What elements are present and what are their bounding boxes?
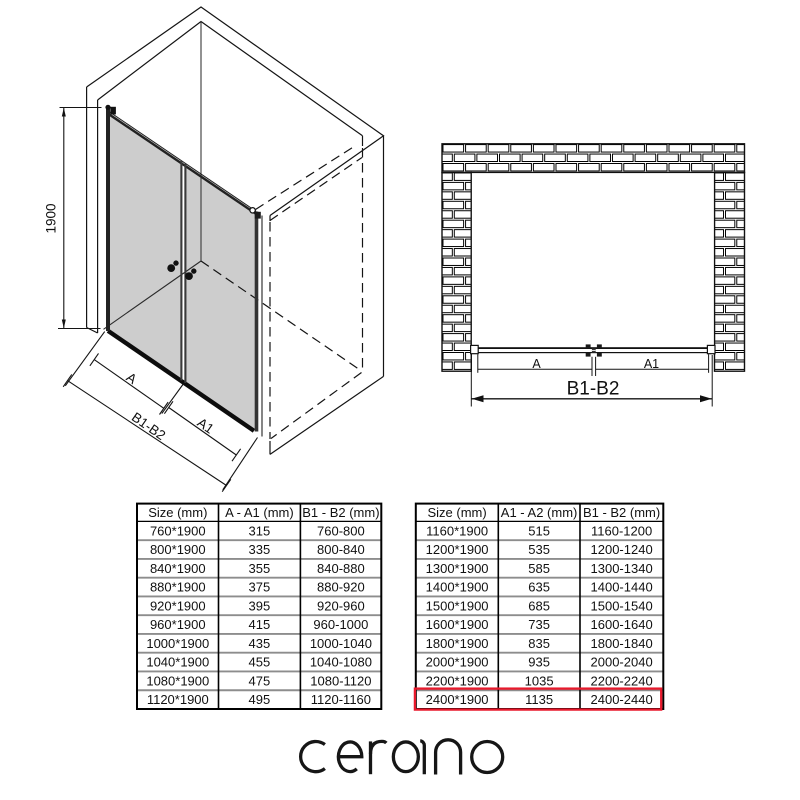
svg-text:880-920: 880-920	[317, 580, 365, 595]
svg-text:A1: A1	[195, 415, 217, 437]
svg-text:635: 635	[528, 580, 550, 595]
svg-text:1300*1900: 1300*1900	[426, 561, 489, 576]
svg-text:1600-1640: 1600-1640	[591, 617, 653, 632]
svg-text:1800-1840: 1800-1840	[591, 636, 653, 651]
svg-text:415: 415	[249, 617, 271, 632]
svg-text:A1 - A2 (mm): A1 - A2 (mm)	[501, 505, 578, 520]
svg-text:335: 335	[249, 542, 271, 557]
svg-text:355: 355	[249, 561, 271, 576]
svg-text:1900: 1900	[44, 203, 59, 233]
svg-text:935: 935	[528, 655, 550, 670]
svg-text:A - A1 (mm): A - A1 (mm)	[225, 505, 294, 520]
svg-text:800-840: 800-840	[317, 542, 365, 557]
svg-text:1040-1080: 1040-1080	[310, 655, 372, 670]
svg-text:535: 535	[528, 542, 550, 557]
svg-text:2000*1900: 2000*1900	[426, 655, 489, 670]
svg-text:2400*1900: 2400*1900	[426, 692, 489, 707]
svg-text:735: 735	[528, 617, 550, 632]
svg-text:395: 395	[249, 598, 271, 613]
svg-text:B1-B2: B1-B2	[567, 379, 620, 400]
svg-text:B1-B2: B1-B2	[129, 409, 168, 443]
svg-text:760*1900: 760*1900	[150, 523, 206, 538]
svg-text:A1: A1	[644, 357, 659, 371]
svg-text:835: 835	[528, 636, 550, 651]
svg-text:455: 455	[249, 655, 271, 670]
svg-text:2200-2240: 2200-2240	[591, 673, 653, 688]
svg-text:2400-2440: 2400-2440	[591, 692, 653, 707]
svg-text:315: 315	[249, 523, 271, 538]
svg-text:Size (mm): Size (mm)	[427, 505, 486, 520]
svg-text:685: 685	[528, 598, 550, 613]
svg-text:515: 515	[528, 523, 550, 538]
svg-text:2000-2040: 2000-2040	[591, 655, 653, 670]
svg-text:Size (mm): Size (mm)	[148, 505, 207, 520]
svg-text:475: 475	[249, 673, 271, 688]
svg-text:880*1900: 880*1900	[150, 580, 206, 595]
svg-text:1120*1900: 1120*1900	[147, 692, 209, 707]
svg-text:960*1900: 960*1900	[150, 617, 206, 632]
svg-text:840*1900: 840*1900	[150, 561, 206, 576]
svg-text:840-880: 840-880	[317, 561, 365, 576]
svg-text:1200-1240: 1200-1240	[591, 542, 653, 557]
svg-text:1200*1900: 1200*1900	[426, 542, 489, 557]
svg-text:960-1000: 960-1000	[313, 617, 368, 632]
svg-text:1035: 1035	[525, 673, 554, 688]
svg-text:1160*1900: 1160*1900	[426, 523, 488, 538]
svg-text:585: 585	[528, 561, 550, 576]
svg-text:B1 - B2 (mm): B1 - B2 (mm)	[302, 505, 379, 520]
svg-text:1135: 1135	[525, 692, 553, 707]
svg-text:1600*1900: 1600*1900	[426, 617, 489, 632]
svg-text:1000-1040: 1000-1040	[310, 636, 372, 651]
svg-text:1160-1200: 1160-1200	[591, 523, 652, 538]
svg-text:1400-1440: 1400-1440	[591, 580, 653, 595]
svg-text:1500-1540: 1500-1540	[591, 598, 653, 613]
svg-text:495: 495	[249, 692, 271, 707]
svg-text:760-800: 760-800	[317, 523, 365, 538]
svg-text:920*1900: 920*1900	[150, 598, 206, 613]
svg-text:1120-1160: 1120-1160	[311, 692, 371, 707]
svg-text:B1 - B2 (mm): B1 - B2 (mm)	[583, 505, 660, 520]
svg-text:1000*1900: 1000*1900	[146, 636, 209, 651]
svg-text:1300-1340: 1300-1340	[591, 561, 653, 576]
svg-text:1500*1900: 1500*1900	[426, 598, 489, 613]
svg-text:800*1900: 800*1900	[150, 542, 206, 557]
svg-text:1080-1120: 1080-1120	[310, 673, 371, 688]
svg-text:A: A	[124, 370, 140, 387]
svg-text:A: A	[532, 357, 541, 371]
svg-text:2200*1900: 2200*1900	[426, 673, 489, 688]
svg-text:375: 375	[249, 580, 271, 595]
svg-text:1400*1900: 1400*1900	[426, 580, 489, 595]
svg-text:1040*1900: 1040*1900	[146, 655, 209, 670]
svg-text:1080*1900: 1080*1900	[146, 673, 209, 688]
svg-text:1800*1900: 1800*1900	[426, 636, 489, 651]
svg-text:435: 435	[249, 636, 271, 651]
svg-text:920-960: 920-960	[317, 598, 365, 613]
